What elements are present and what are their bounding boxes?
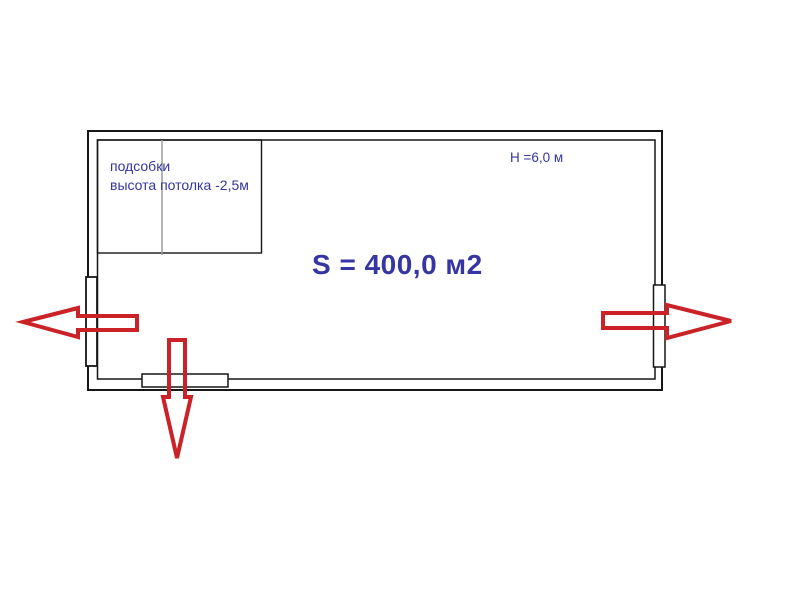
exit-arrow-down-icon <box>163 340 191 458</box>
floor-plan: подсобки высота потолка -2,5м H =6,0 м S… <box>0 0 800 600</box>
annex-ceiling-note: высота потолка -2,5м <box>110 176 249 195</box>
floor-plan-drawing <box>0 0 800 600</box>
exit-arrow-right-icon <box>603 305 731 338</box>
door-left <box>86 277 97 366</box>
annex-label: подсобки высота потолка -2,5м <box>110 157 249 195</box>
exit-arrow-left-icon <box>23 308 137 337</box>
hall-height-label: H =6,0 м <box>510 150 563 165</box>
annex-name: подсобки <box>110 157 249 176</box>
hall-area-label: S = 400,0 м2 <box>312 249 483 281</box>
